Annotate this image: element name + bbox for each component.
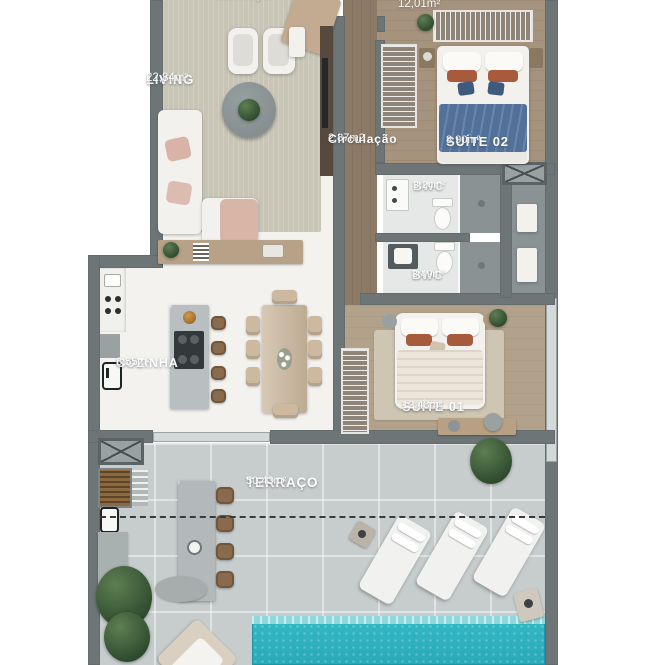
bwc1-toilet — [434, 207, 451, 230]
room-area: 22,84m² — [146, 72, 188, 86]
fridge-handle — [106, 368, 109, 378]
sideboard-books — [193, 243, 209, 261]
armchair-seat — [233, 34, 253, 66]
dining-chair — [308, 316, 322, 335]
sideboard-tray — [262, 244, 284, 258]
bed-accent-pillow — [487, 81, 504, 96]
suite02-closet-top — [433, 10, 533, 42]
room-area: 12,01m² — [398, 0, 440, 12]
bwc1-shower-drain — [478, 200, 485, 207]
stove-burner — [115, 296, 121, 302]
wall-suite01-top — [360, 293, 555, 305]
bwc2-sink — [394, 248, 412, 264]
bwc2-shower-drain — [478, 262, 485, 269]
bed-accent-pillow — [447, 70, 477, 82]
bwc1-shower-glass — [458, 175, 460, 233]
bed-accent-pillow — [488, 70, 518, 82]
cooktop-burner — [178, 355, 187, 364]
suite02-wardrobe-left — [381, 44, 417, 128]
room-area: 2,87m2 — [328, 132, 365, 145]
side-table-kettle — [358, 530, 366, 538]
dining-chair — [246, 367, 260, 386]
terrace-plant-left-2 — [104, 612, 150, 662]
bed-pillow — [485, 52, 523, 71]
bwc2-shower-glass — [458, 242, 460, 293]
bed-pillow — [443, 52, 481, 71]
stove-burner — [105, 296, 111, 302]
tv — [322, 58, 328, 128]
gold-pot — [183, 311, 196, 324]
pillar-x-right — [502, 162, 547, 185]
bbq-grill — [98, 468, 132, 508]
suite02-plant — [417, 14, 434, 31]
suite01-duvet — [397, 350, 483, 405]
nightstand-round — [382, 314, 397, 329]
bwc1-faucet — [392, 198, 397, 203]
terrace-dashed-line — [100, 516, 545, 518]
bed-accent-pillow — [406, 334, 432, 346]
bar-stool — [211, 389, 226, 403]
bwc1-faucet — [392, 186, 397, 191]
dining-chair — [246, 340, 260, 359]
bwc1-toilet-tank — [432, 198, 453, 207]
table-flowers — [277, 348, 292, 370]
shaft-unit — [517, 204, 537, 232]
bwc2-toilet-tank — [434, 242, 455, 251]
pool-edge — [252, 616, 545, 624]
bed-accent-pillow — [447, 334, 473, 346]
dining-chair — [308, 340, 322, 359]
nightstand — [529, 48, 543, 68]
dining-chair — [308, 367, 322, 386]
stove-burner — [105, 308, 111, 314]
sideboard-plant — [163, 242, 179, 258]
corridor-floor — [343, 0, 377, 305]
terrace-ottoman — [155, 576, 207, 602]
room-area: 12,48m² — [402, 399, 442, 412]
terrace-bar-stool — [216, 487, 234, 504]
room-area: 3,49m² — [412, 268, 445, 281]
bar-stool — [211, 341, 226, 355]
terrace-table-kettle — [524, 599, 533, 608]
terrace-glass-door — [153, 432, 270, 442]
room-area: 8,55m² — [116, 356, 150, 369]
dining-chair — [272, 290, 297, 304]
sofa-pillow — [165, 180, 192, 205]
sofa-vertical — [158, 110, 202, 234]
coffee-table-plant — [238, 99, 260, 121]
nightstand-lamp — [423, 52, 432, 61]
cooktop-burner — [190, 355, 199, 364]
kitchen-cabinet — [100, 334, 120, 358]
room-area: 50,43m² — [246, 475, 286, 488]
terrace-bar-stool — [216, 543, 234, 560]
suite01-pouf — [484, 413, 502, 431]
terrace-bar-stool — [216, 571, 234, 588]
kitchen-sink — [104, 274, 121, 287]
wall-bwc-divider — [375, 233, 470, 242]
stove-burner — [115, 308, 121, 314]
floor-plan: SERVIÇO 3,83m² 12,01m² LIVING 22,84m² Ci… — [0, 0, 665, 665]
bar-sink — [187, 540, 202, 555]
bar-stool — [211, 316, 226, 330]
room-name: SERVIÇO — [214, 0, 273, 1]
suite02-bed-foot — [439, 152, 527, 163]
room-area: 3,24m² — [413, 179, 446, 192]
bbq-skewers — [132, 470, 148, 506]
wall-suite02-door-jamb — [377, 16, 385, 32]
washer — [289, 27, 305, 57]
suite01-plant — [489, 309, 507, 327]
suite01-wardrobe — [341, 348, 369, 434]
bwc1-vanity — [386, 179, 409, 211]
dining-chair — [273, 404, 298, 418]
terrace-fridge-icon — [100, 507, 119, 533]
console-decor — [448, 420, 460, 432]
shaft-unit — [517, 248, 537, 282]
bed-accent-pillow — [457, 81, 475, 96]
room-area: 8,90m² — [446, 134, 480, 147]
dining-chair — [246, 316, 260, 335]
pillar-x-terrace — [98, 438, 144, 465]
terrace-plant-right — [470, 438, 512, 484]
chaise-cushion — [220, 199, 258, 243]
cooktop-burner — [178, 335, 187, 344]
bar-stool — [211, 366, 226, 380]
cooktop-burner — [190, 335, 199, 344]
